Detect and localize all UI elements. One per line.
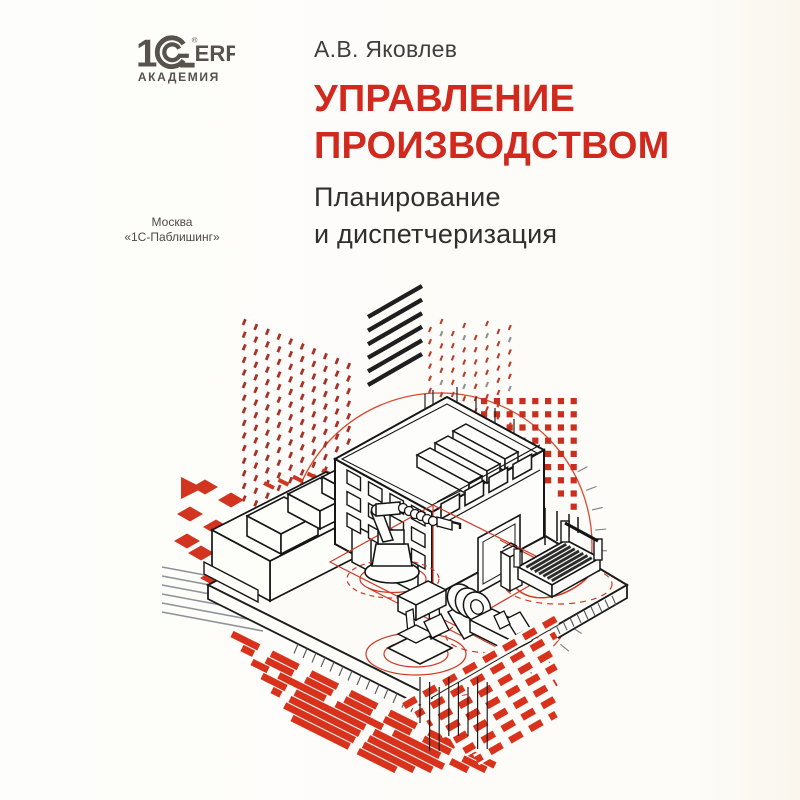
- imprint-publisher: «1С-Паблишинг»: [116, 230, 228, 245]
- cover-illustration-smart-factory: [0, 268, 800, 800]
- logo-erp-text: ERP: [195, 41, 235, 66]
- logo-1c-spiral-icon: [157, 38, 194, 67]
- imprint-city: Москва: [116, 215, 228, 230]
- publisher-logo-1c-erp-akademia: 1 ® ERP АКАДЕМИЯ: [135, 31, 235, 85]
- book-subtitle: Планирование и диспетчеризация: [314, 179, 557, 253]
- book-cover: { "logo": { "one": "1", "erp": "ERP", "r…: [0, 0, 800, 800]
- subtitle-line-1: Планирование: [314, 179, 557, 216]
- book-title: УПРАВЛЕНИЕ ПРОИЗВОДСТВОМ: [314, 76, 669, 170]
- title-line-2: ПРОИЗВОДСТВОМ: [314, 123, 669, 170]
- logo-series-text: АКАДЕМИЯ: [138, 70, 220, 84]
- author-name: А.В. Яковлев: [314, 36, 457, 63]
- title-line-1: УПРАВЛЕНИЕ: [314, 76, 669, 123]
- subtitle-line-2: и диспетчеризация: [314, 216, 557, 253]
- imprint: Москва «1С-Паблишинг»: [116, 215, 228, 245]
